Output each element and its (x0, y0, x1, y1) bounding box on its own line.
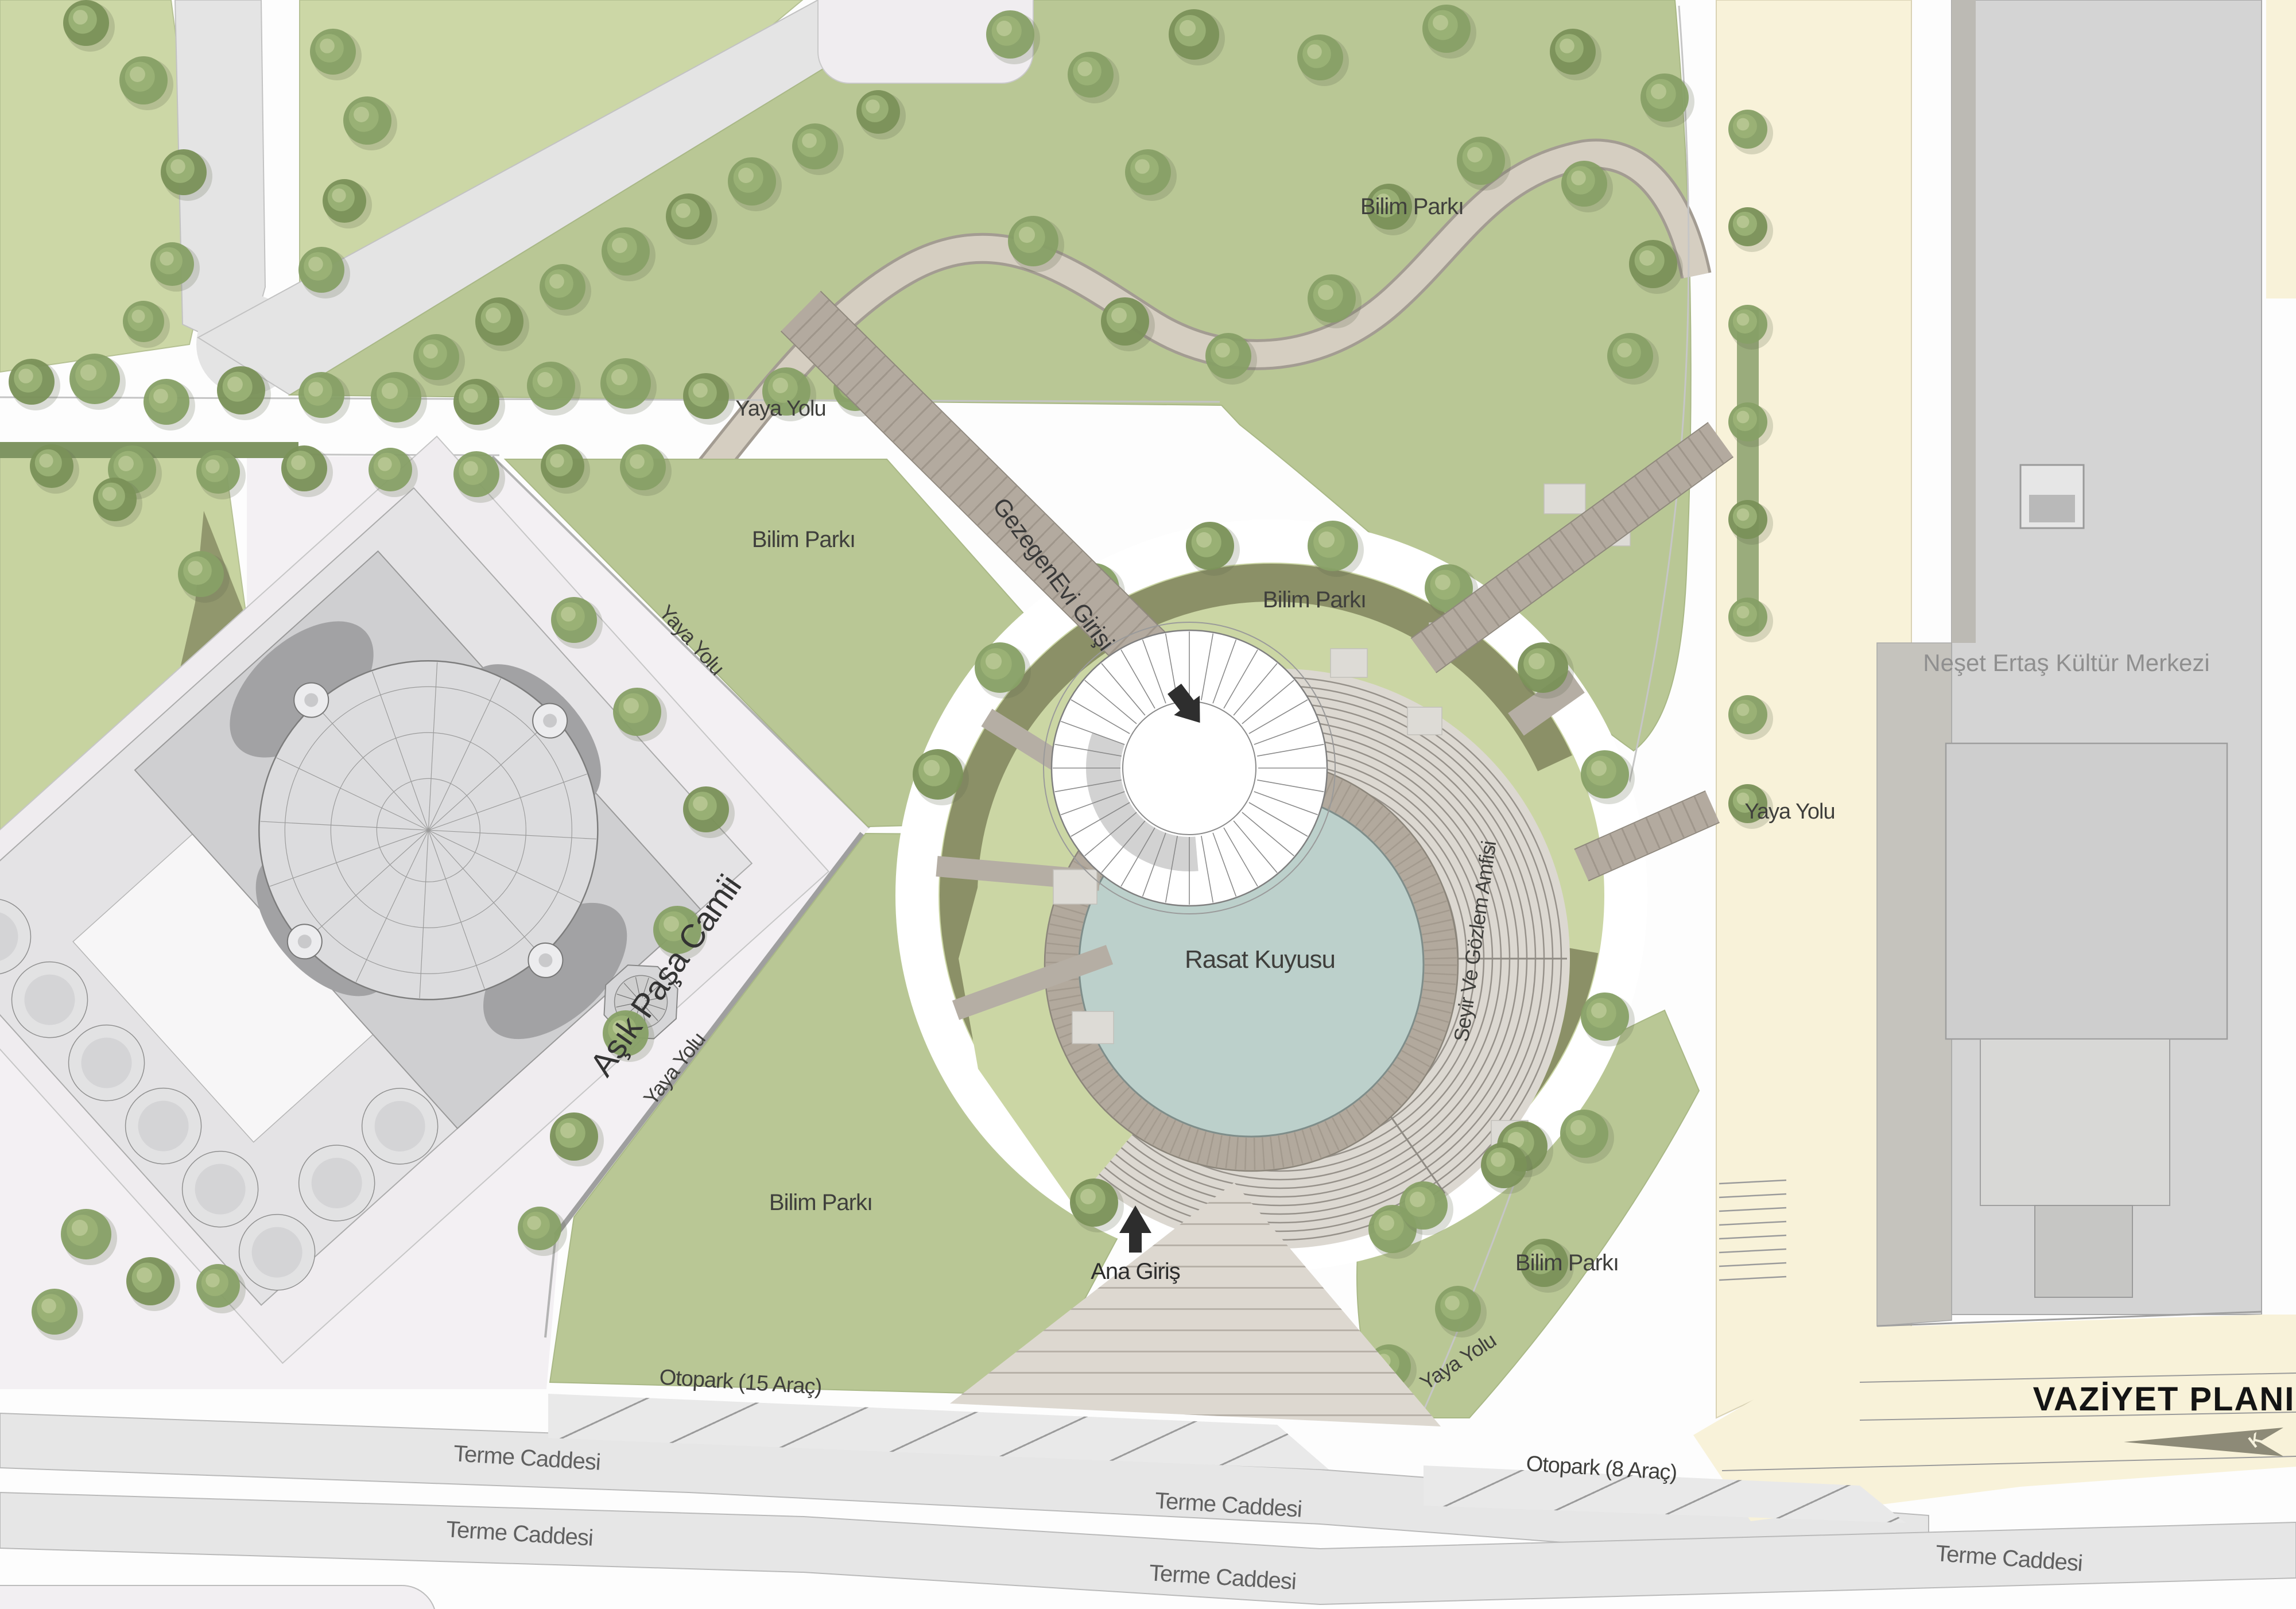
label-yaya-yolu-right: Yaya Yolu (1744, 801, 1835, 823)
label-bilim-parki-bottom-right: Bilim Parkı (1515, 1251, 1619, 1274)
label-bilim-parki-lower-left: Bilim Parkı (769, 1191, 872, 1214)
planetarium-spiral-ramp (1044, 622, 1335, 914)
label-vaziyet-plani: VAZİYET PLANI (2033, 1383, 2295, 1416)
spiral-center (1123, 701, 1256, 835)
label-yaya-yolu-top: Yaya Yolu (735, 398, 825, 420)
main-entrance-arrow-icon (1119, 1205, 1151, 1253)
label-rasat-kuyusu: Rasat Kuyusu (1185, 947, 1335, 972)
label-bilim-parki-top-right: Bilim Parkı (1360, 195, 1464, 218)
overlay-drawing (0, 0, 2296, 1609)
label-ana-giris: Ana Giriş (1091, 1260, 1180, 1283)
label-bilim-parki-upper-left: Bilim Parkı (752, 528, 855, 551)
site-plan-canvas: Bilim Parkı Bilim Parkı Bilim Parkı Bili… (0, 0, 2296, 1609)
label-bilim-parki-circle: Bilim Parkı (1263, 588, 1366, 611)
label-neset-ertas-kultur-merkezi: Neşet Ertaş Kültür Merkezi (1923, 651, 2210, 675)
